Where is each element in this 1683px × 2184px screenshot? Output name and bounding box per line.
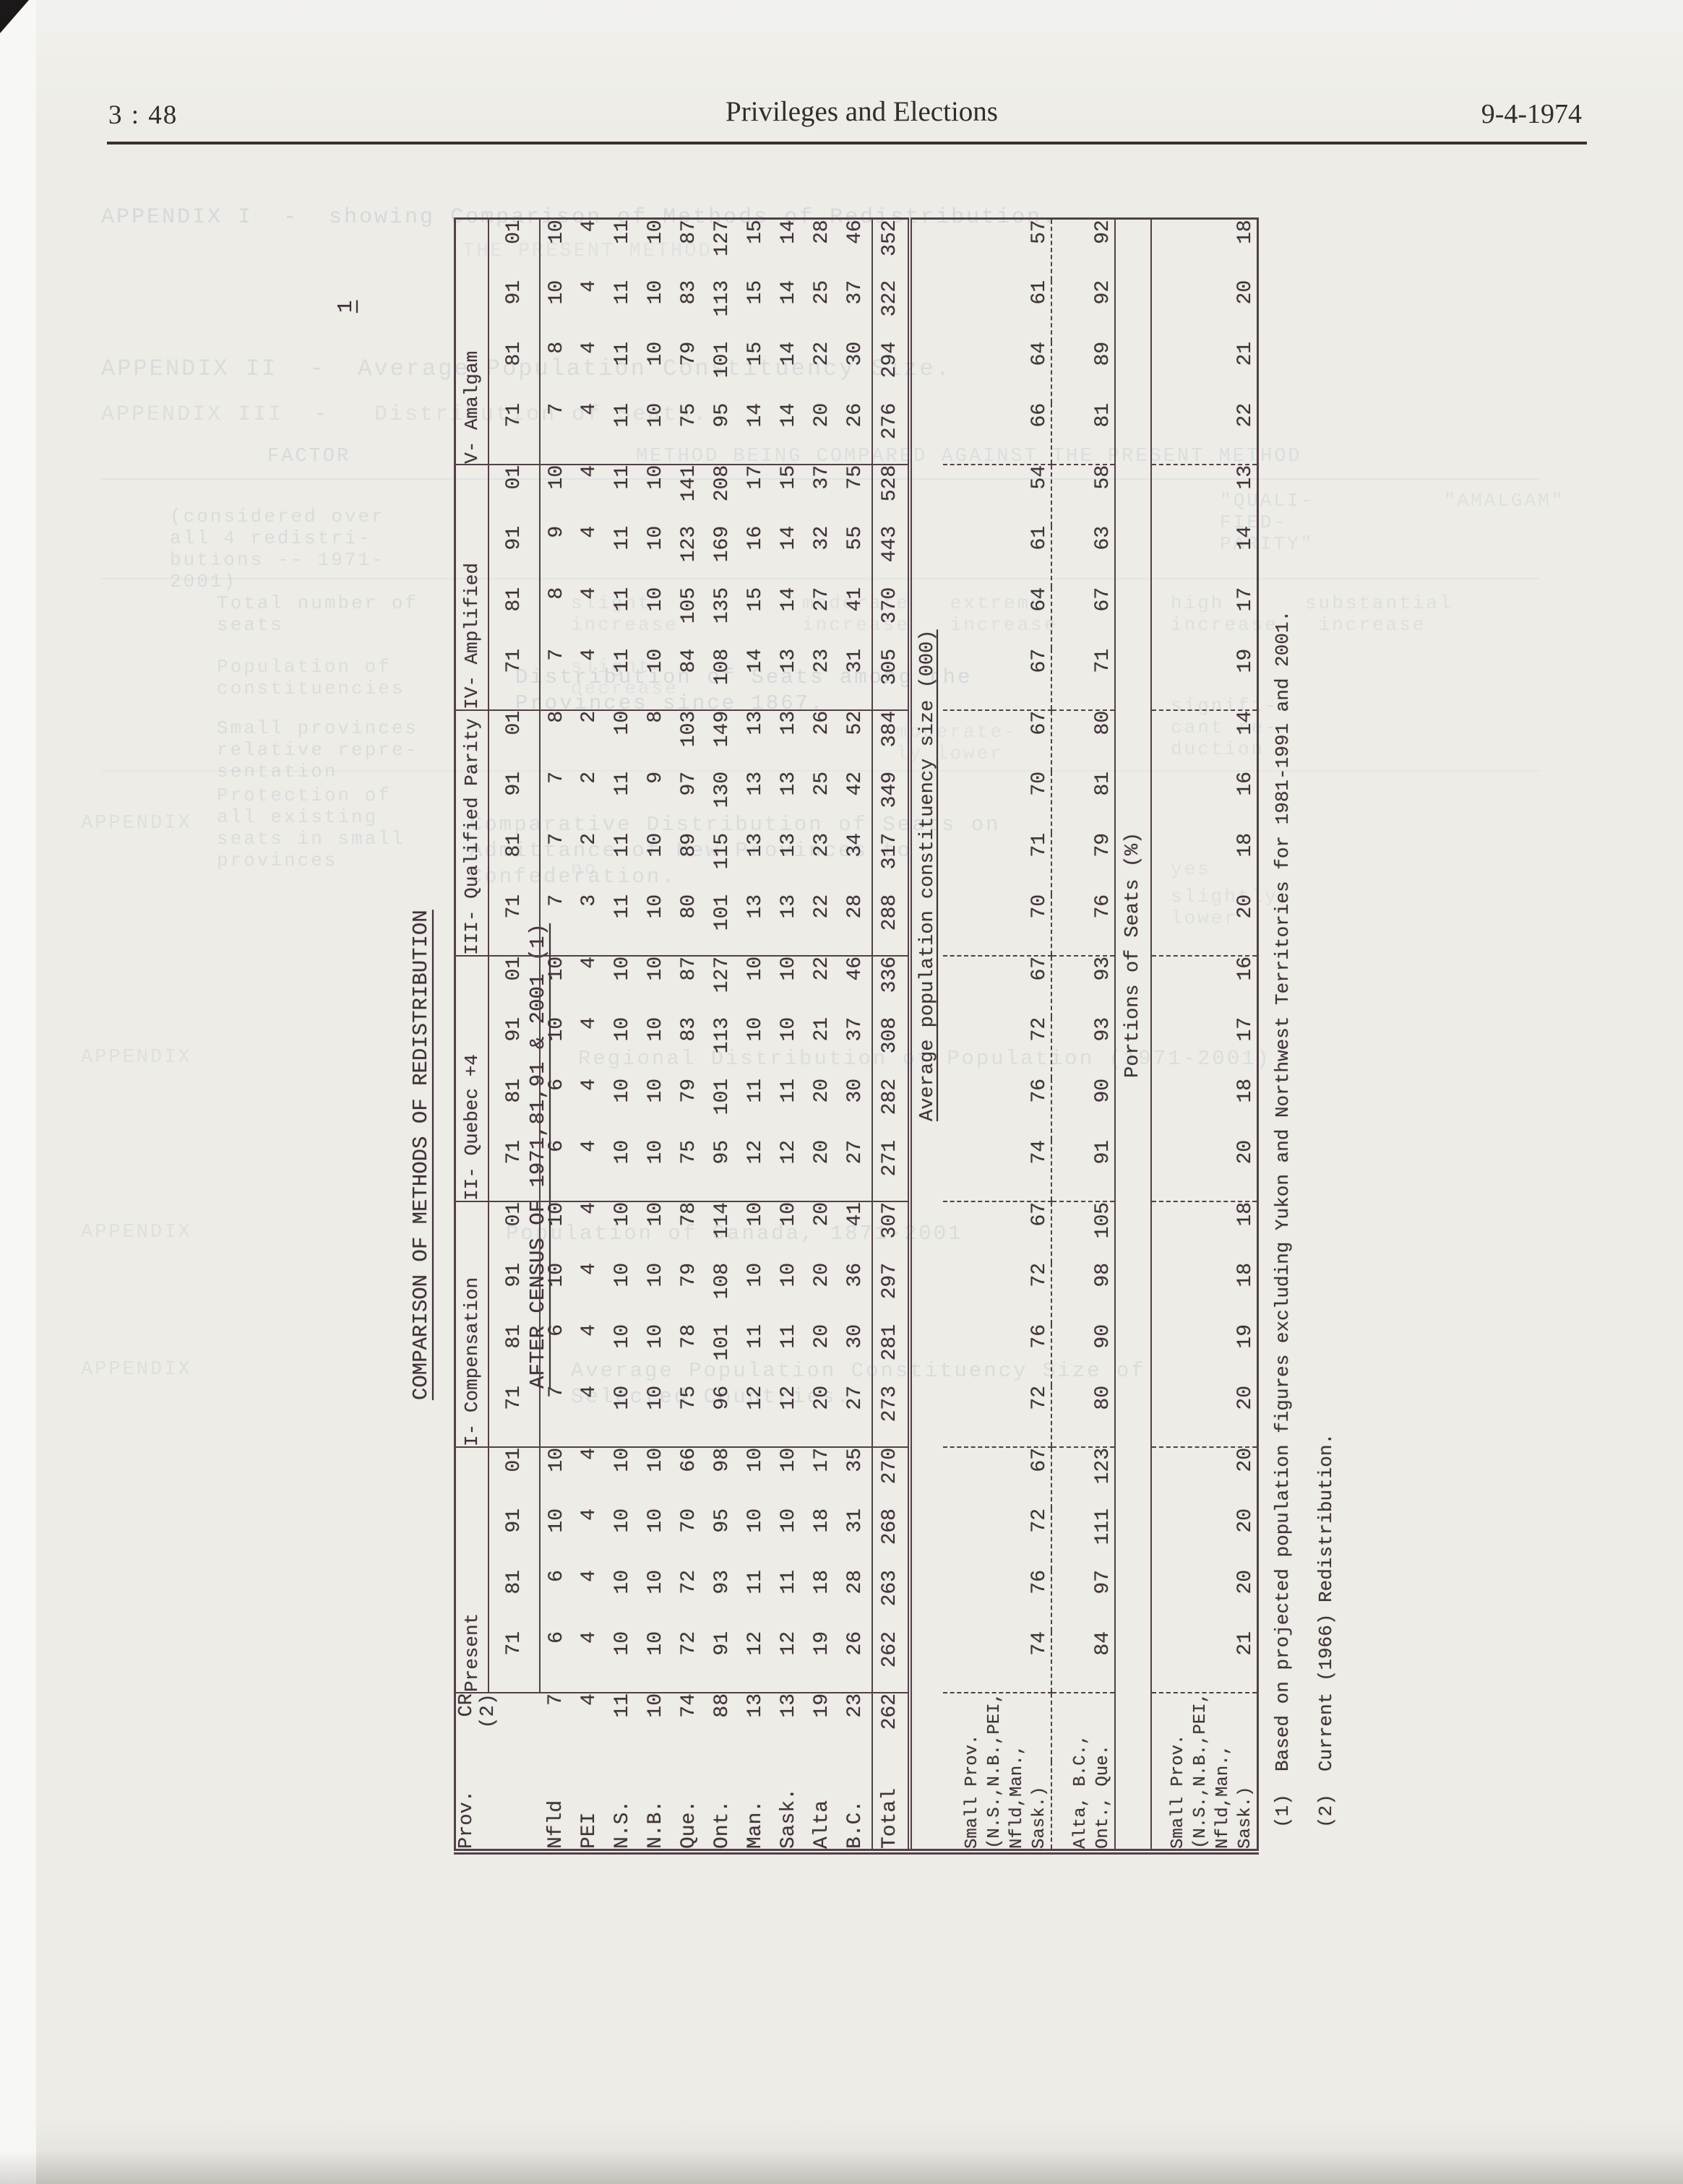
value-cell: 4	[573, 1386, 606, 1447]
province-name-cell: Ont.	[706, 1761, 739, 1852]
value-cell: 10	[606, 1263, 640, 1324]
value-cell: 322	[872, 280, 910, 342]
value-cell: 11	[606, 342, 640, 403]
value-cell: 101	[706, 342, 739, 403]
value-cell: 2	[573, 833, 606, 894]
year-header: 01	[488, 1201, 540, 1263]
value-cell: 13	[739, 833, 772, 894]
avg-section-header-row: Average population constituency size (00…	[910, 219, 943, 1852]
value-cell: 263	[872, 1570, 910, 1631]
value-cell: 308	[872, 1017, 910, 1079]
value-cell: 18	[1151, 1263, 1258, 1324]
value-cell: 10	[739, 1017, 772, 1079]
value-cell: 35	[839, 1447, 872, 1508]
value-cell: 10	[540, 1508, 573, 1570]
value-cell: 10	[772, 1017, 806, 1079]
value-cell: 4	[573, 1140, 606, 1201]
value-cell: 14	[739, 649, 772, 710]
value-cell: 11	[606, 587, 640, 649]
year-header: 91	[488, 1017, 540, 1079]
value-cell: 31	[839, 1508, 872, 1570]
value-cell: 8	[640, 710, 673, 772]
value-cell: 70	[943, 772, 1051, 833]
value-cell: 28	[839, 894, 872, 956]
value-cell: 26	[806, 710, 839, 772]
value-cell: 13	[772, 649, 806, 710]
total-label-cell: Total	[872, 1761, 910, 1852]
value-cell: 9	[640, 772, 673, 833]
value-cell: 74	[943, 1140, 1051, 1201]
value-cell: 93	[1051, 1017, 1115, 1079]
value-cell: 23	[806, 649, 839, 710]
value-cell: 72	[943, 1508, 1051, 1570]
year-header: 71	[488, 1631, 540, 1693]
value-cell: 3	[573, 894, 606, 956]
value-cell: 11	[606, 526, 640, 587]
value-cell: 34	[839, 833, 872, 894]
value-cell: 25	[806, 280, 839, 342]
value-cell: 67	[943, 956, 1051, 1017]
value-cell: 11	[606, 772, 640, 833]
value-cell: 169	[706, 526, 739, 587]
year-header: 71	[488, 403, 540, 465]
province-name-cell: Alta	[806, 1761, 839, 1852]
value-cell: 4	[573, 587, 606, 649]
value-cell: 10	[606, 1570, 640, 1631]
value-cell: 10	[606, 1447, 640, 1508]
value-cell: 262	[872, 1631, 910, 1693]
year-header: 01	[488, 1447, 540, 1508]
cr-value-cell: 13	[772, 1693, 806, 1761]
value-cell: 11	[739, 1079, 772, 1140]
value-cell: 352	[872, 219, 910, 280]
value-cell: 67	[943, 649, 1051, 710]
value-cell: 4	[573, 219, 606, 280]
value-cell: 294	[872, 342, 910, 403]
value-cell: 10	[606, 1079, 640, 1140]
value-cell: 10	[606, 1386, 640, 1447]
value-cell: 8	[540, 342, 573, 403]
value-cell: 11	[772, 1324, 806, 1386]
value-cell: 57	[943, 219, 1051, 280]
value-cell: 20	[806, 1140, 839, 1201]
value-cell: 281	[872, 1324, 910, 1386]
value-cell: 14	[772, 342, 806, 403]
value-cell: 13	[739, 772, 772, 833]
appendix-page-number: 1	[334, 301, 358, 313]
value-cell: 64	[943, 587, 1051, 649]
value-cell: 37	[839, 280, 872, 342]
value-cell: 14	[1151, 526, 1258, 587]
value-cell: 4	[573, 342, 606, 403]
value-cell: 111	[1051, 1508, 1115, 1570]
value-cell: 36	[839, 1263, 872, 1324]
value-cell: 10	[606, 1017, 640, 1079]
value-cell: 14	[772, 587, 806, 649]
year-header: 91	[488, 280, 540, 342]
value-cell: 105	[673, 587, 706, 649]
table-title-line1: COMPARISON OF METHODS OF REDISTRIBUTION	[409, 910, 433, 1400]
year-header: 81	[488, 1570, 540, 1631]
value-cell: 98	[706, 1447, 739, 1508]
value-cell: 20	[806, 1079, 839, 1140]
value-cell: 91	[1051, 1140, 1115, 1201]
value-cell: 6	[540, 1140, 573, 1201]
value-cell: 15	[739, 280, 772, 342]
value-cell: 21	[1151, 1631, 1258, 1693]
value-cell: 61	[943, 526, 1051, 587]
value-cell: 32	[806, 526, 839, 587]
value-cell: 7	[540, 403, 573, 465]
value-cell: 4	[573, 1263, 606, 1324]
value-cell: 20	[806, 1201, 839, 1263]
value-cell: 10	[540, 1201, 573, 1263]
value-cell: 19	[1151, 1324, 1258, 1386]
value-cell: 127	[706, 219, 739, 280]
value-cell: 149	[706, 710, 739, 772]
scanned-page: { "page_header": { "left": "3 : 48", "ce…	[0, 0, 1683, 2184]
value-cell: 13	[772, 710, 806, 772]
value-cell: 66	[943, 403, 1051, 465]
value-cell: 17	[806, 1447, 839, 1508]
value-cell: 76	[943, 1570, 1051, 1631]
value-cell: 81	[1051, 772, 1115, 833]
value-cell: 30	[839, 1324, 872, 1386]
value-cell: 72	[943, 1386, 1051, 1447]
value-cell: 18	[806, 1570, 839, 1631]
value-cell: 10	[640, 1386, 673, 1447]
value-cell: 7	[540, 772, 573, 833]
value-cell: 108	[706, 1263, 739, 1324]
value-cell: 10	[640, 1263, 673, 1324]
value-cell: 4	[573, 1447, 606, 1508]
value-cell: 10	[640, 1324, 673, 1386]
value-cell: 27	[839, 1140, 872, 1201]
value-cell: 31	[839, 649, 872, 710]
value-cell: 6	[540, 1631, 573, 1693]
value-cell: 270	[872, 1447, 910, 1508]
value-cell: 2	[573, 710, 606, 772]
value-cell: 101	[706, 1079, 739, 1140]
value-cell: 14	[772, 219, 806, 280]
value-cell: 90	[1051, 1079, 1115, 1140]
value-cell: 123	[673, 526, 706, 587]
value-cell: 46	[839, 956, 872, 1017]
value-cell: 528	[872, 465, 910, 526]
value-cell: 13	[1151, 465, 1258, 526]
value-cell: 14	[772, 403, 806, 465]
value-cell: 72	[943, 1263, 1051, 1324]
value-cell: 76	[1051, 894, 1115, 956]
province-name-cell: N.B.	[640, 1761, 673, 1852]
cr-value-cell: 23	[839, 1693, 872, 1761]
value-cell: 11	[606, 465, 640, 526]
province-name-cell: Sask.	[772, 1761, 806, 1852]
value-cell: 370	[872, 587, 910, 649]
value-cell: 10	[640, 1631, 673, 1693]
value-cell: 10	[606, 1140, 640, 1201]
value-cell: 74	[943, 1631, 1051, 1693]
value-cell: 67	[943, 710, 1051, 772]
value-cell: 10	[540, 465, 573, 526]
value-cell: 10	[606, 1201, 640, 1263]
value-cell: 67	[1051, 587, 1115, 649]
value-cell: 13	[772, 772, 806, 833]
year-header: 01	[488, 219, 540, 280]
value-cell: 19	[806, 1631, 839, 1693]
value-cell: 10	[739, 1447, 772, 1508]
value-cell: 10	[540, 956, 573, 1017]
value-cell: 317	[872, 833, 910, 894]
value-cell: 10	[772, 1263, 806, 1324]
value-cell: 14	[772, 526, 806, 587]
value-cell: 18	[1151, 833, 1258, 894]
value-cell: 4	[573, 1324, 606, 1386]
value-cell: 297	[872, 1263, 910, 1324]
value-cell: 15	[739, 219, 772, 280]
value-cell: 76	[943, 1324, 1051, 1386]
value-cell: 11	[606, 219, 640, 280]
prov-col-header: Prov.	[455, 1761, 540, 1852]
year-header: 81	[488, 587, 540, 649]
value-cell: 273	[872, 1386, 910, 1447]
value-cell: 4	[573, 280, 606, 342]
value-cell: 22	[806, 956, 839, 1017]
value-cell: 72	[943, 1017, 1051, 1079]
value-cell: 10	[606, 956, 640, 1017]
value-cell: 4	[573, 465, 606, 526]
value-cell: 89	[1051, 342, 1115, 403]
value-cell: 18	[1151, 219, 1258, 280]
value-cell: 12	[739, 1140, 772, 1201]
value-cell: 276	[872, 403, 910, 465]
value-cell: 123	[1051, 1447, 1115, 1508]
value-cell: 58	[1051, 465, 1115, 526]
method-header: III- Qualified Parity	[455, 710, 488, 956]
value-cell: 64	[943, 342, 1051, 403]
year-header: 81	[488, 1079, 540, 1140]
value-cell: 25	[806, 772, 839, 833]
value-cell: 12	[772, 1386, 806, 1447]
value-cell: 4	[573, 1079, 606, 1140]
value-cell: 4	[573, 1201, 606, 1263]
value-cell: 105	[1051, 1201, 1115, 1263]
value-cell: 12	[739, 1631, 772, 1693]
value-cell: 72	[673, 1570, 706, 1631]
value-cell: 95	[706, 1140, 739, 1201]
year-header: 01	[488, 710, 540, 772]
value-cell: 63	[1051, 526, 1115, 587]
value-cell: 26	[839, 1631, 872, 1693]
cr-value-cell: 74	[673, 1693, 706, 1761]
value-cell: 12	[772, 1631, 806, 1693]
value-cell: 8	[540, 710, 573, 772]
value-cell: 141	[673, 465, 706, 526]
province-name-cell: Nfld	[540, 1761, 573, 1852]
value-cell: 20	[1151, 280, 1258, 342]
province-name-cell: Man.	[739, 1761, 772, 1852]
value-cell: 96	[706, 1386, 739, 1447]
value-cell: 27	[839, 1386, 872, 1447]
value-cell: 101	[706, 894, 739, 956]
value-cell: 21	[806, 1017, 839, 1079]
cr-value-cell: 13	[739, 1693, 772, 1761]
value-cell: 18	[1151, 1201, 1258, 1263]
value-cell: 14	[739, 403, 772, 465]
method-header: IV- Amplified	[455, 465, 488, 710]
value-cell: 20	[806, 1263, 839, 1324]
value-cell: 19	[1151, 649, 1258, 710]
value-cell: 81	[1051, 403, 1115, 465]
value-cell: 13	[739, 710, 772, 772]
value-cell: 46	[839, 219, 872, 280]
value-cell: 10	[606, 1324, 640, 1386]
value-cell: 10	[640, 526, 673, 587]
portions-small-provinces-label-cell: Small Prov. (N.S.,N.B.,PEI, Nfld,Man., S…	[1151, 1693, 1258, 1852]
value-cell: 92	[1051, 219, 1115, 280]
small-provinces-label-cell: Small Prov. (N.S.,N.B.,PEI, Nfld,Man., S…	[943, 1693, 1051, 1852]
value-cell: 10	[640, 1201, 673, 1263]
value-cell: 98	[1051, 1263, 1115, 1324]
value-cell: 75	[673, 1140, 706, 1201]
value-cell: 349	[872, 772, 910, 833]
cr-value-cell: 7	[540, 1693, 573, 1761]
value-cell: 4	[573, 1017, 606, 1079]
value-cell: 288	[872, 894, 910, 956]
value-cell: 115	[706, 833, 739, 894]
value-cell: 87	[673, 956, 706, 1017]
value-cell: 10	[772, 1508, 806, 1570]
value-cell: 78	[673, 1201, 706, 1263]
value-cell: 18	[806, 1508, 839, 1570]
value-cell: 79	[673, 1263, 706, 1324]
method-header: V- Amalgam	[455, 219, 488, 465]
value-cell: 10	[640, 280, 673, 342]
value-cell: 75	[673, 403, 706, 465]
value-cell: 21	[1151, 342, 1258, 403]
value-cell: 89	[673, 833, 706, 894]
value-cell: 4	[573, 956, 606, 1017]
value-cell: 95	[706, 1508, 739, 1570]
value-cell: 10	[640, 894, 673, 956]
value-cell: 84	[1051, 1631, 1115, 1693]
method-header: I- Compensation	[455, 1201, 488, 1447]
value-cell: 16	[739, 526, 772, 587]
value-cell: 76	[943, 1079, 1051, 1140]
value-cell: 208	[706, 465, 739, 526]
value-cell: 83	[673, 280, 706, 342]
rotated-content: 1 COMPARISON OF METHODS OF REDISTRIBUTIO…	[0, 0, 1683, 2184]
year-header: 01	[488, 465, 540, 526]
total-cr-cell: 262	[872, 1693, 910, 1761]
value-cell: 84	[673, 649, 706, 710]
value-cell: 7	[540, 1386, 573, 1447]
value-cell: 268	[872, 1508, 910, 1570]
value-cell: 10	[772, 956, 806, 1017]
value-cell: 30	[839, 1079, 872, 1140]
value-cell: 18	[1151, 1079, 1258, 1140]
value-cell: 30	[839, 342, 872, 403]
value-cell: 93	[706, 1570, 739, 1631]
value-cell: 12	[772, 1140, 806, 1201]
value-cell: 20	[1151, 1386, 1258, 1447]
value-cell: 66	[673, 1447, 706, 1508]
value-cell: 13	[772, 894, 806, 956]
value-cell: 71	[1051, 649, 1115, 710]
value-cell: 10	[640, 1017, 673, 1079]
value-cell: 443	[872, 526, 910, 587]
value-cell: 11	[739, 1324, 772, 1386]
value-cell: 11	[606, 403, 640, 465]
value-cell: 113	[706, 280, 739, 342]
value-cell: 61	[943, 280, 1051, 342]
value-cell: 41	[839, 587, 872, 649]
year-header: 81	[488, 342, 540, 403]
value-cell: 336	[872, 956, 910, 1017]
cr-value-cell: 4	[573, 1693, 606, 1761]
value-cell: 10	[739, 1263, 772, 1324]
value-cell: 4	[573, 403, 606, 465]
value-cell: 70	[943, 894, 1051, 956]
province-name-cell: Que.	[673, 1761, 706, 1852]
method-header: Present	[455, 1447, 488, 1693]
year-header: 91	[488, 1263, 540, 1324]
value-cell: 10	[540, 219, 573, 280]
value-cell: 135	[706, 587, 739, 649]
value-cell: 95	[706, 403, 739, 465]
value-cell: 20	[806, 1386, 839, 1447]
value-cell: 20	[1151, 1140, 1258, 1201]
large-provinces-label-cell: Alta, B.C., Ont., Que.	[1051, 1693, 1115, 1852]
value-cell: 307	[872, 1201, 910, 1263]
value-cell: 4	[573, 1570, 606, 1631]
value-cell: 10	[640, 1447, 673, 1508]
value-cell: 20	[1151, 894, 1258, 956]
value-cell: 20	[806, 1324, 839, 1386]
value-cell: 37	[806, 465, 839, 526]
value-cell: 6	[540, 1570, 573, 1631]
value-cell: 79	[673, 1079, 706, 1140]
value-cell: 10	[640, 465, 673, 526]
value-cell: 10	[640, 587, 673, 649]
value-cell: 103	[673, 710, 706, 772]
value-cell: 10	[640, 1140, 673, 1201]
value-cell: 97	[1051, 1570, 1115, 1631]
value-cell: 20	[1151, 1570, 1258, 1631]
year-header: 91	[488, 772, 540, 833]
value-cell: 80	[673, 894, 706, 956]
value-cell: 28	[806, 219, 839, 280]
value-cell: 91	[706, 1631, 739, 1693]
value-cell: 54	[943, 465, 1051, 526]
value-cell: 13	[739, 894, 772, 956]
value-cell: 10	[640, 1570, 673, 1631]
year-header: 71	[488, 894, 540, 956]
value-cell: 17	[1151, 587, 1258, 649]
value-cell: 78	[673, 1324, 706, 1386]
method-header: II- Quebec +4	[455, 956, 488, 1201]
value-cell: 10	[640, 833, 673, 894]
value-cell: 10	[606, 1631, 640, 1693]
value-cell: 7	[540, 833, 573, 894]
year-header: 71	[488, 1140, 540, 1201]
value-cell: 10	[540, 280, 573, 342]
value-cell: 27	[806, 587, 839, 649]
value-cell: 11	[606, 649, 640, 710]
value-cell: 4	[573, 649, 606, 710]
value-cell: 70	[673, 1508, 706, 1570]
value-cell: 108	[706, 649, 739, 710]
